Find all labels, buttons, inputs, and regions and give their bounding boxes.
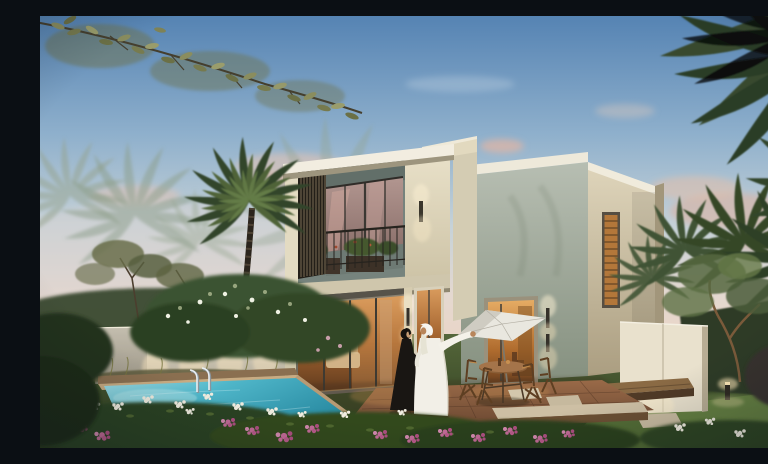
rendering-canvas: Twilight exterior rendering of a cream m… — [40, 16, 768, 448]
villa-rendering — [40, 16, 768, 448]
vignette — [40, 16, 768, 448]
